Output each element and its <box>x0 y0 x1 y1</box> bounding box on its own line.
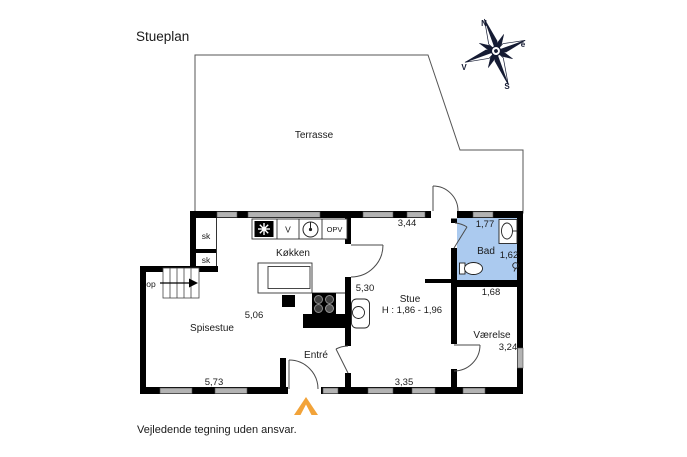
dimension-spisestue-depth: 5,06 <box>245 310 264 321</box>
kitchen-units: V OPV <box>252 219 347 239</box>
dimension-spisestue-width: 5,73 <box>205 377 224 388</box>
dimension-stue-width-top: 3,44 <box>398 218 417 229</box>
entrance-arrow <box>294 397 318 415</box>
toilet <box>460 263 483 275</box>
wall-segment <box>190 211 196 272</box>
kitchen-appliance-block <box>282 295 295 307</box>
door-kitchen-stue <box>351 245 383 277</box>
door-entre-stue <box>336 346 348 373</box>
disclaimer-note: Vejledende tegning uden ansvar. <box>137 424 297 436</box>
door-opening <box>288 387 321 395</box>
window <box>248 212 320 218</box>
wall-segment <box>451 218 457 223</box>
window <box>160 388 192 394</box>
wall-segment <box>451 280 520 287</box>
dimension-bad-width-bottom: 1,68 <box>482 287 501 298</box>
room-label-stue: Stue <box>400 294 421 305</box>
dishwasher-symbol: OPV <box>327 225 343 234</box>
room-label-bad: Bad <box>477 246 495 257</box>
washbasin <box>499 220 517 244</box>
wall-segment <box>451 287 457 344</box>
page-title: Stueplan <box>136 29 189 44</box>
appliance-dial-icon <box>303 222 318 237</box>
dimension-bad-width: 1,77 <box>476 219 495 230</box>
extractor-fan-icon <box>255 221 274 237</box>
compass-rose-icon: N e S V <box>453 8 537 96</box>
door-vaerelse <box>454 345 480 371</box>
wall-segment <box>451 369 457 387</box>
dimension-bad-depth: 1,62 <box>500 250 519 261</box>
floor-plan-canvas: Stueplan Terrasse <box>0 0 687 457</box>
room-label-terrasse: Terrasse <box>295 130 334 141</box>
door-entrance <box>289 360 318 389</box>
room-label-spisestue: Spisestue <box>190 323 234 334</box>
window <box>217 212 237 218</box>
dimension-vaerelse-depth: 3,24 <box>499 342 518 353</box>
wall-segment <box>345 277 351 346</box>
wood-burning-stove <box>352 299 370 328</box>
chimney <box>303 314 347 328</box>
window <box>518 348 524 368</box>
closet-label: sk <box>202 255 211 265</box>
stove-top <box>312 293 336 314</box>
dimension-kokken-depth: 5,30 <box>356 283 375 294</box>
wall-stub <box>425 279 453 283</box>
wall-segment <box>345 373 351 387</box>
room-label-entre: Entré <box>304 350 328 361</box>
floor-plan-page: Stueplan Terrasse <box>0 0 687 457</box>
compass-south-label: S <box>504 82 510 91</box>
stue-ceiling-height: H : 1,86 - 1,96 <box>382 305 442 316</box>
compass-east-label: e <box>521 40 526 49</box>
compass-north-label: N <box>481 19 487 28</box>
closet-label: sk <box>202 231 211 241</box>
window <box>368 388 393 394</box>
washing-machine-symbol: V <box>285 225 291 235</box>
staircase: op <box>146 268 199 298</box>
room-label-kokken: Køkken <box>276 248 310 259</box>
closet-divider-wall <box>196 249 217 253</box>
window <box>215 388 247 394</box>
dimension-stue-width-bottom: 3,35 <box>395 377 414 388</box>
window <box>473 212 493 218</box>
terrasse-outline <box>195 55 523 213</box>
wall-segment <box>140 266 146 394</box>
window <box>412 388 435 394</box>
window <box>407 212 425 218</box>
window <box>323 388 338 394</box>
stairs-up-label: op <box>146 279 156 289</box>
wall-segment <box>280 358 286 387</box>
closets: sk sk <box>202 218 217 266</box>
window <box>463 388 485 394</box>
room-label-vaerelse: Værelse <box>473 330 511 341</box>
door-opening <box>431 211 457 219</box>
compass-west-label: V <box>461 63 467 72</box>
window <box>363 212 393 218</box>
